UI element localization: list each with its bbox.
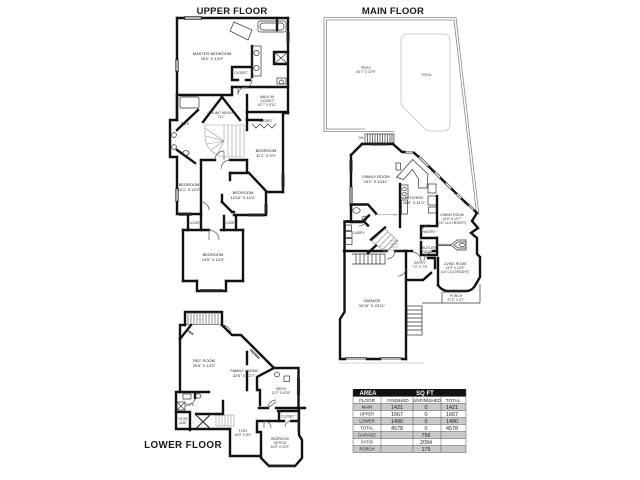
- svg-text:LNDRY: LNDRY: [353, 231, 365, 235]
- svg-text:20'9" X 14'2": 20'9" X 14'2": [193, 363, 216, 368]
- svg-text:(10' CLG HEIGHT): (10' CLG HEIGHT): [438, 221, 466, 225]
- svg-text:34'10" X 23'11": 34'10" X 23'11": [359, 303, 386, 308]
- svg-text:PANTRY: PANTRY: [422, 230, 436, 234]
- svg-text:MAIN: MAIN: [362, 405, 372, 410]
- svg-text:CLOSET: CLOSET: [259, 119, 273, 123]
- svg-text:0: 0: [425, 426, 428, 432]
- svg-text:14'9" X 12'9": 14'9" X 12'9": [270, 445, 290, 449]
- svg-text:0: 0: [425, 412, 428, 418]
- svg-text:1421: 1421: [446, 405, 458, 411]
- svg-text:22'5" X 12'7": 22'5" X 12'7": [233, 373, 256, 378]
- svg-text:DN: DN: [359, 136, 364, 140]
- svg-text:TOTAL: TOTAL: [446, 398, 461, 403]
- svg-text:16'5" X 11'2": 16'5" X 11'2": [403, 200, 426, 205]
- svg-text:LOWER FLOOR: LOWER FLOOR: [144, 440, 222, 451]
- svg-text:AREA: AREA: [359, 391, 377, 397]
- svg-text:UPPER: UPPER: [360, 412, 374, 417]
- svg-text:40'7" X 37'9": 40'7" X 37'9": [356, 70, 376, 74]
- svg-text:10'7" X 5'11": 10'7" X 5'11": [258, 103, 278, 107]
- svg-text:0: 0: [425, 419, 428, 425]
- svg-text:GARAGE: GARAGE: [358, 433, 376, 438]
- svg-text:1490: 1490: [391, 419, 403, 425]
- svg-text:CLOSET: CLOSET: [223, 221, 237, 225]
- svg-text:175: 175: [422, 447, 431, 453]
- svg-text:UPPER FLOOR: UPPER FLOOR: [197, 6, 268, 17]
- svg-text:1490: 1490: [446, 419, 458, 425]
- svg-text:1421: 1421: [391, 405, 403, 411]
- svg-text:16'0" X 8'0": 16'0" X 8'0": [234, 433, 252, 437]
- svg-text:7'11": 7'11": [217, 115, 225, 119]
- svg-text:27'2" X 6'7": 27'2" X 6'7": [447, 298, 465, 302]
- svg-text:1667: 1667: [391, 412, 403, 418]
- svg-text:11'1" X 9'9": 11'1" X 9'9": [256, 153, 277, 158]
- svg-text:BATH: BATH: [181, 122, 190, 126]
- svg-text:CLOSET: CLOSET: [234, 71, 248, 75]
- svg-text:1667: 1667: [446, 412, 458, 418]
- svg-text:7'0" X 7'5": 7'0" X 7'5": [412, 265, 428, 269]
- svg-text:PORCH: PORCH: [359, 447, 374, 452]
- svg-text:PATIO: PATIO: [361, 440, 374, 445]
- svg-text:TOTAL: TOTAL: [360, 426, 374, 431]
- svg-text:10'10" X 10'4": 10'10" X 10'4": [231, 195, 256, 200]
- svg-text:FINISHED: FINISHED: [387, 398, 409, 403]
- svg-text:4578: 4578: [391, 426, 403, 432]
- svg-text:FLOOR: FLOOR: [359, 398, 376, 403]
- svg-text:POOL: POOL: [422, 73, 432, 77]
- svg-text:15'2" X 13'4": 15'2" X 13'4": [201, 56, 224, 61]
- svg-text:12'1" X 10'0": 12'1" X 10'0": [178, 187, 201, 192]
- svg-text:MAIN FLOOR: MAIN FLOOR: [362, 6, 424, 17]
- svg-text:0: 0: [425, 405, 428, 411]
- svg-text:756: 756: [422, 433, 431, 439]
- svg-text:15'2" X 14'11": 15'2" X 14'11": [364, 179, 389, 184]
- svg-text:CLOSET: CLOSET: [281, 415, 295, 419]
- svg-text:AGE: AGE: [179, 421, 187, 425]
- svg-text:SQ FT: SQ FT: [416, 391, 434, 397]
- svg-text:14'5" X 12'4": 14'5" X 12'4": [202, 257, 225, 262]
- svg-text:(10' CLG HEIGHT): (10' CLG HEIGHT): [441, 270, 469, 274]
- svg-text:CLOSET: CLOSET: [188, 221, 202, 225]
- svg-text:LOWER: LOWER: [359, 419, 374, 424]
- svg-text:2094: 2094: [420, 440, 432, 446]
- svg-text:11'2" X 5'25": 11'2" X 5'25": [272, 391, 292, 395]
- svg-text:UNFINISHED: UNFINISHED: [413, 398, 442, 403]
- svg-text:4578: 4578: [446, 426, 458, 432]
